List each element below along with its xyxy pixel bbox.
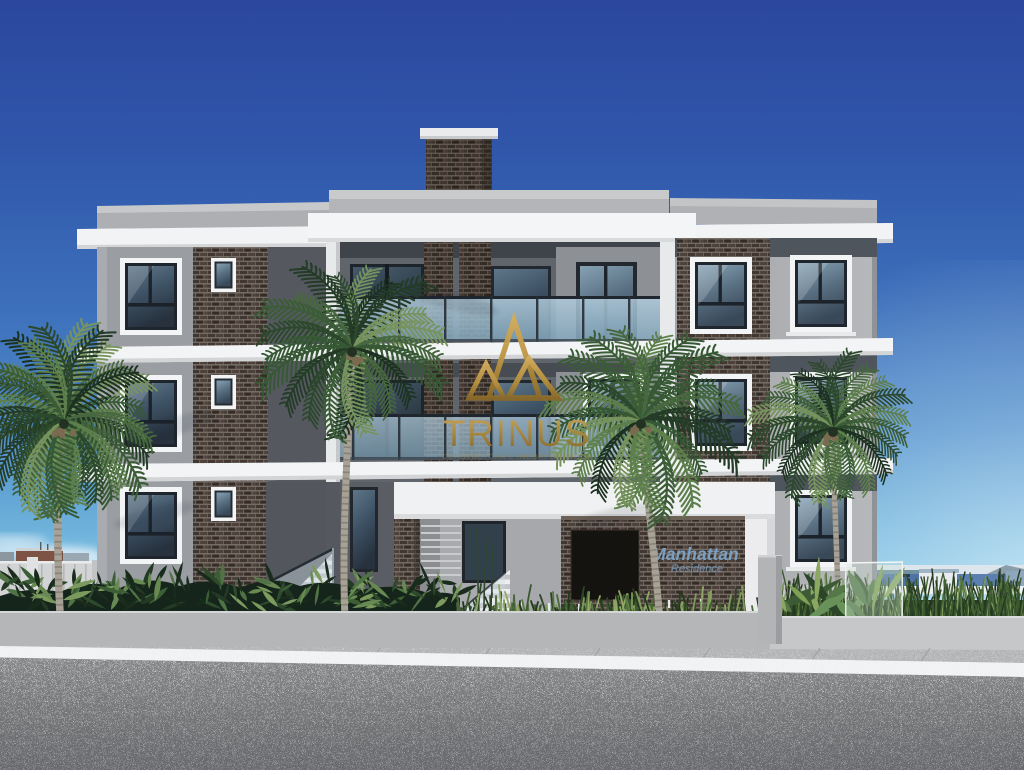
svg-text:TRINUS: TRINUS <box>443 413 592 454</box>
svg-text:CONSTRUTORA E INCORPORADORA: CONSTRUTORA E INCORPORADORA <box>442 452 592 461</box>
svg-text:Residence: Residence <box>671 563 723 575</box>
svg-text:Manhattan: Manhattan <box>651 544 739 564</box>
